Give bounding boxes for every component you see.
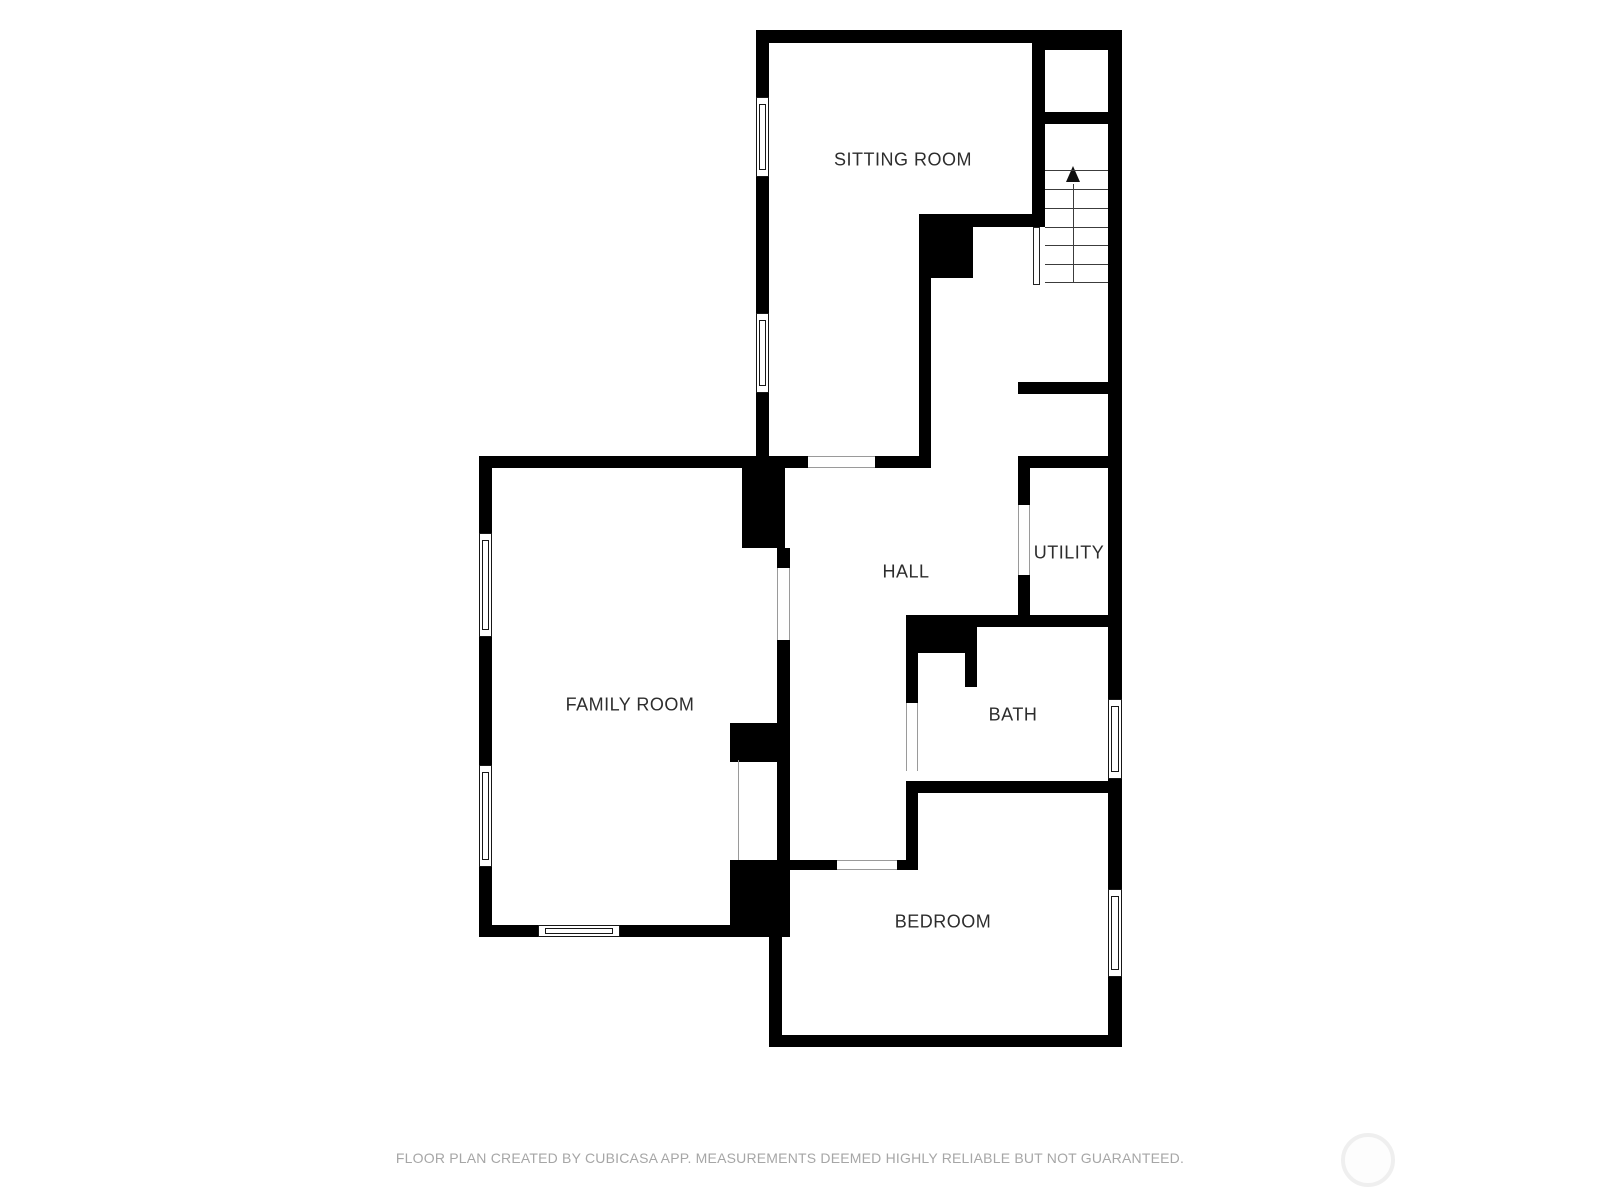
wall-segment [1018, 456, 1108, 468]
window-symbol [1108, 699, 1122, 779]
wall-segment [1032, 43, 1045, 227]
stair-tread [1045, 189, 1108, 190]
window-symbol [1108, 889, 1122, 977]
stair-tread [1045, 208, 1108, 209]
wall-segment [769, 1035, 1122, 1047]
wall-segment [906, 615, 1108, 627]
wall-segment [756, 177, 769, 313]
stair-direction-line [1073, 184, 1074, 282]
wall-segment [756, 30, 1122, 43]
stair-tread [1045, 245, 1108, 246]
window-glass [1111, 896, 1119, 970]
window-symbol [756, 97, 769, 177]
cubicasa-watermark-icon [1341, 1133, 1395, 1187]
window-glass [482, 540, 489, 630]
window-symbol [538, 925, 620, 937]
wall-segment [965, 653, 977, 687]
window-glass [482, 772, 489, 860]
window-glass [1111, 706, 1119, 772]
window-symbol [479, 533, 492, 637]
room-label-utility: UTILITY [1034, 543, 1105, 564]
window-glass [545, 928, 613, 934]
wall-segment [479, 637, 492, 765]
staircase [1045, 124, 1108, 285]
room-label-family-room: FAMILY ROOM [566, 695, 695, 716]
window-glass [759, 320, 766, 386]
wall-segment [906, 781, 918, 870]
wall-segment [875, 456, 931, 468]
wall-segment [479, 456, 492, 533]
door-opening [906, 703, 918, 771]
wall-segment [756, 393, 769, 456]
wall-segment [782, 860, 837, 870]
room-label-bath: BATH [989, 705, 1038, 726]
stair-tread [1045, 264, 1108, 265]
room-label-hall: HALL [882, 562, 929, 583]
wall-segment [742, 468, 785, 548]
wall-segment [769, 868, 782, 1047]
wall-segment [777, 548, 790, 568]
room-label-sitting-room: SITTING ROOM [834, 150, 972, 171]
stair-tread [1045, 227, 1108, 228]
stair-tread [1045, 170, 1108, 171]
door-opening [777, 568, 790, 640]
window-glass [759, 104, 766, 170]
window-symbol [756, 313, 769, 393]
door-opening [837, 860, 897, 870]
stair-railing [1033, 227, 1040, 285]
door-opening [1018, 505, 1030, 575]
wall-segment [1032, 112, 1108, 124]
opening-jamb-line [738, 760, 739, 860]
wall-segment [1018, 382, 1108, 394]
footer-disclaimer: FLOOR PLAN CREATED BY CUBICASA APP. MEAS… [396, 1150, 1184, 1166]
wall-segment [479, 925, 538, 937]
wall-segment [906, 781, 1108, 793]
wall-segment [730, 723, 790, 762]
floor-plan: SITTING ROOM FAMILY ROOM HALL UTILITY BA… [0, 0, 1600, 1200]
window-symbol [479, 765, 492, 867]
wall-segment [919, 214, 973, 278]
stair-tread [1045, 282, 1108, 283]
room-label-bedroom: BEDROOM [895, 912, 992, 933]
wall-segment [919, 278, 931, 468]
wall-segment [756, 43, 769, 97]
door-opening [808, 456, 875, 468]
arrow-up-icon [1066, 166, 1080, 182]
wall-segment [1018, 575, 1030, 627]
wall-segment [479, 456, 808, 468]
wall-segment [973, 214, 1032, 227]
